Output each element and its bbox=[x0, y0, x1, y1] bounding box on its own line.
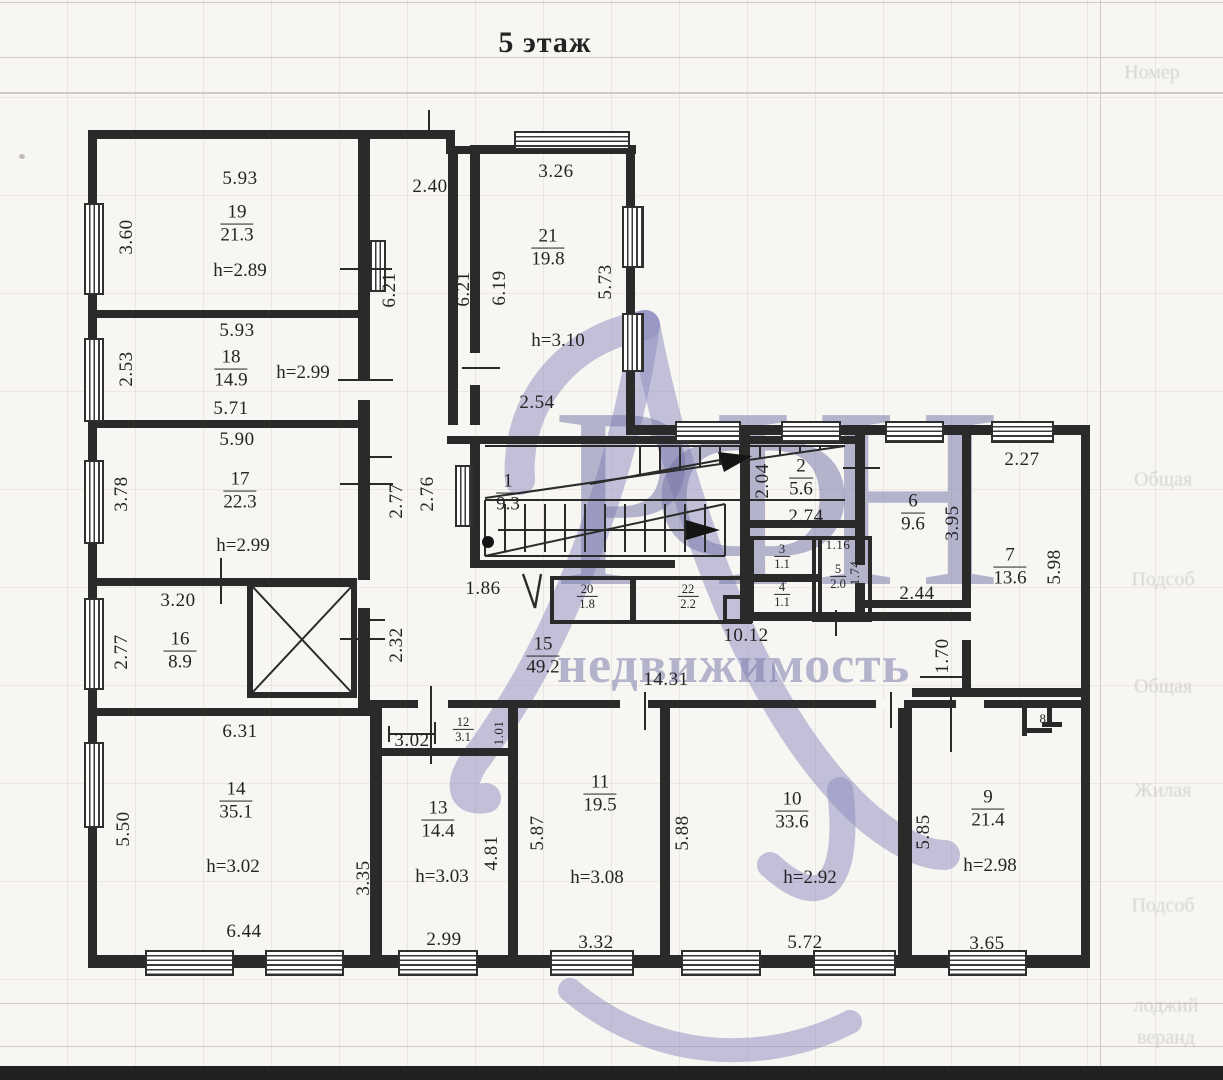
room-2-number: 2 bbox=[789, 457, 813, 479]
room-6-label: 69.6 bbox=[901, 492, 925, 535]
dimension-tick bbox=[890, 692, 892, 728]
dim: 3.32 bbox=[578, 932, 613, 954]
wall bbox=[470, 148, 480, 353]
wall bbox=[97, 708, 378, 716]
bg-table-label: Общая bbox=[1134, 469, 1192, 492]
dimension-tick bbox=[430, 686, 432, 764]
room-21-area: 19.8 bbox=[531, 249, 564, 270]
room-6-number: 6 bbox=[901, 492, 925, 514]
dim: 1.16 bbox=[826, 537, 851, 553]
window bbox=[398, 950, 478, 976]
window bbox=[622, 313, 644, 372]
dim: 1.70 bbox=[932, 638, 954, 673]
dim: 1.01 bbox=[491, 721, 507, 746]
wall bbox=[97, 310, 358, 318]
room-17-area: 22.3 bbox=[223, 492, 256, 513]
dim: 5.71 bbox=[213, 398, 248, 420]
bg-rule bbox=[0, 1003, 1223, 1004]
room-11-area: 19.5 bbox=[583, 795, 616, 816]
room-13-height: h=3.03 bbox=[415, 866, 468, 888]
wall bbox=[358, 139, 370, 379]
room-9-number: 9 bbox=[971, 788, 1004, 810]
room-22-label: 222.2 bbox=[678, 583, 699, 611]
dim: 2.32 bbox=[386, 627, 408, 662]
window bbox=[265, 950, 344, 976]
room-20-label: 201.8 bbox=[577, 583, 598, 611]
room-2-label: 25.6 bbox=[789, 457, 813, 500]
wall bbox=[358, 400, 370, 580]
dim: 3.20 bbox=[160, 590, 195, 612]
room-21-number: 21 bbox=[531, 227, 564, 249]
dimension-tick bbox=[358, 619, 385, 621]
room-17-label: 1722.3 bbox=[223, 470, 256, 513]
bg-table-label: Жилая bbox=[1135, 780, 1192, 803]
bg-rule bbox=[0, 57, 1223, 58]
dim: 4.81 bbox=[481, 835, 503, 870]
room-2-area: 5.6 bbox=[789, 479, 813, 500]
wall bbox=[470, 385, 480, 425]
room-1-label: 19.3 bbox=[496, 472, 520, 515]
dim: 5.88 bbox=[672, 815, 694, 850]
room-10-height: h=2.92 bbox=[783, 867, 836, 889]
room-13-area: 14.4 bbox=[421, 821, 454, 842]
room-19-height: h=2.89 bbox=[213, 260, 266, 282]
room-9-area: 21.4 bbox=[971, 810, 1004, 831]
bg-rule bbox=[1100, 0, 1101, 1080]
dim: 10.12 bbox=[723, 625, 768, 647]
window bbox=[622, 206, 644, 268]
dim: 2.99 bbox=[426, 929, 461, 951]
bg-table-label: Номер bbox=[1124, 62, 1180, 85]
room-14-label: 1435.1 bbox=[219, 780, 252, 823]
dim: 5.72 bbox=[787, 932, 822, 954]
dimension-tick bbox=[388, 726, 390, 742]
door-opening bbox=[418, 700, 448, 708]
room-9-height: h=2.98 bbox=[963, 855, 1016, 877]
room-12-number: 12 bbox=[453, 716, 474, 730]
room-4-area: 1.1 bbox=[774, 595, 790, 609]
dim: 2.04 bbox=[752, 463, 774, 498]
room-9-label: 921.4 bbox=[971, 788, 1004, 831]
room-22-number: 22 bbox=[678, 583, 699, 597]
room-18-area: 14.9 bbox=[214, 370, 247, 391]
window bbox=[84, 598, 104, 690]
room-6-area: 9.6 bbox=[901, 514, 925, 535]
dimension-tick bbox=[434, 722, 436, 744]
dimension-tick bbox=[835, 610, 837, 636]
bg-table-label: веранд bbox=[1137, 1027, 1195, 1050]
dim: 5.85 bbox=[913, 814, 935, 849]
bg-table-label: Подсоб bbox=[1131, 895, 1194, 918]
wall bbox=[660, 700, 670, 955]
dimension-tick bbox=[220, 558, 222, 604]
dim: 6.21 bbox=[379, 272, 401, 307]
wall bbox=[912, 688, 1090, 697]
room-1-number: 1 bbox=[496, 472, 520, 494]
room-16-label: 168.9 bbox=[164, 630, 197, 673]
dim: 5.90 bbox=[219, 429, 254, 451]
room-22-area: 2.2 bbox=[678, 597, 699, 611]
dim: 3.95 bbox=[942, 505, 964, 540]
dim: 5.98 bbox=[1044, 549, 1066, 584]
dim: 2.77 bbox=[111, 634, 133, 669]
room-3-number: 3 bbox=[774, 543, 790, 557]
window bbox=[84, 742, 104, 828]
room-10-area: 33.6 bbox=[775, 812, 808, 833]
room-15-label: 1549.2 bbox=[526, 635, 559, 678]
room-17-number: 17 bbox=[223, 470, 256, 492]
dim: 5.50 bbox=[113, 811, 135, 846]
room-18-label: 1814.9 bbox=[214, 348, 247, 391]
door-swing bbox=[520, 572, 544, 612]
wall bbox=[97, 420, 358, 428]
room-14-number: 14 bbox=[219, 780, 252, 802]
room-12-area: 3.1 bbox=[453, 730, 474, 744]
room-5-area: 2.0 bbox=[830, 577, 846, 591]
dim: 2.74 bbox=[788, 506, 823, 528]
dim: 3.78 bbox=[111, 476, 133, 511]
window bbox=[84, 338, 104, 422]
room-4-number: 4 bbox=[774, 581, 790, 595]
dimension-tick bbox=[920, 676, 965, 678]
room-13-label: 1314.4 bbox=[421, 799, 454, 842]
room-21-label: 2119.8 bbox=[531, 227, 564, 270]
bg-rule bbox=[0, 1046, 1223, 1047]
dim: 5.93 bbox=[219, 320, 254, 342]
dim: 3.02 bbox=[394, 730, 429, 752]
dim: 2.53 bbox=[116, 351, 138, 386]
dim: 2.27 bbox=[1004, 449, 1039, 471]
dim: 5.87 bbox=[527, 815, 549, 850]
dim: 6.31 bbox=[222, 721, 257, 743]
dim: 5.73 bbox=[595, 264, 617, 299]
dim: 6.44 bbox=[226, 921, 261, 943]
window bbox=[991, 421, 1054, 443]
room-5-label: 52.0 bbox=[830, 563, 846, 591]
window bbox=[145, 950, 234, 976]
bg-table-label: лоджий bbox=[1134, 995, 1199, 1018]
bg-rule bbox=[0, 2, 1223, 3]
room-10-number: 10 bbox=[775, 790, 808, 812]
room-15-area: 49.2 bbox=[526, 657, 559, 678]
dim: 3.65 bbox=[969, 933, 1004, 955]
room-3-area: 1.1 bbox=[774, 557, 790, 571]
dim: 14.31 bbox=[643, 669, 688, 691]
room-14-area: 35.1 bbox=[219, 802, 252, 823]
room-21-height: h=3.10 bbox=[531, 330, 584, 352]
room-7-area: 13.6 bbox=[993, 568, 1026, 589]
room-12-label: 123.1 bbox=[453, 716, 474, 744]
bg-rule bbox=[0, 92, 1223, 94]
room-14-height: h=3.02 bbox=[206, 856, 259, 878]
dim: 2.44 bbox=[899, 583, 934, 605]
dim: 3.26 bbox=[538, 161, 573, 183]
dim: 3.60 bbox=[116, 219, 138, 254]
dimension-tick bbox=[340, 268, 392, 270]
room-16-area: 8.9 bbox=[164, 652, 197, 673]
room-11-number: 11 bbox=[583, 773, 616, 795]
partition-box bbox=[723, 595, 753, 623]
dimension-tick bbox=[950, 692, 952, 752]
window bbox=[681, 950, 761, 976]
room-13-number: 13 bbox=[421, 799, 454, 821]
wall bbox=[508, 700, 518, 955]
window bbox=[84, 203, 104, 295]
dim: 5.93 bbox=[222, 168, 257, 190]
scan-speck bbox=[19, 154, 25, 159]
room-17-height: h=2.99 bbox=[216, 535, 269, 557]
bg-table-label: Подсоб bbox=[1131, 569, 1194, 592]
dimension-tick bbox=[644, 692, 646, 730]
wall bbox=[358, 608, 370, 708]
room-8-number: 8 bbox=[1040, 711, 1047, 727]
room-20-area: 1.8 bbox=[577, 597, 598, 611]
room-18-height: h=2.99 bbox=[276, 362, 329, 384]
window bbox=[813, 950, 896, 976]
wall bbox=[898, 700, 912, 955]
dim: 3.35 bbox=[353, 860, 375, 895]
dim: 1.86 bbox=[465, 578, 500, 600]
room-3-label: 31.1 bbox=[774, 543, 790, 571]
floor-plan-scan: Номер Общая Подсоб Общая Жилая Подсоб ло… bbox=[0, 0, 1223, 1080]
wall bbox=[626, 145, 635, 434]
room-1-area: 9.3 bbox=[496, 494, 520, 515]
dimension-tick bbox=[462, 367, 500, 369]
room-16-number: 16 bbox=[164, 630, 197, 652]
room-7-label: 713.6 bbox=[993, 546, 1026, 589]
room-5-number: 5 bbox=[830, 563, 846, 577]
room-7-number: 7 bbox=[993, 546, 1026, 568]
door-opening bbox=[956, 700, 984, 708]
room-4-label: 41.1 bbox=[774, 581, 790, 609]
window bbox=[514, 131, 630, 150]
room-19-label: 1921.3 bbox=[220, 203, 253, 246]
wall bbox=[370, 700, 382, 955]
elevator-shaft-x bbox=[247, 581, 357, 698]
window bbox=[885, 421, 944, 443]
room-15-number: 15 bbox=[526, 635, 559, 657]
dim: 2.40 bbox=[412, 176, 447, 198]
room-20-number: 20 bbox=[577, 583, 598, 597]
room-10-label: 1033.6 bbox=[775, 790, 808, 833]
dim: 2.54 bbox=[519, 392, 554, 414]
dim: 2.77 bbox=[386, 483, 408, 518]
dim: 6.21 bbox=[453, 271, 475, 306]
window bbox=[84, 460, 104, 544]
room-19-area: 21.3 bbox=[220, 225, 253, 246]
page-title: 5 этаж bbox=[498, 26, 591, 60]
room-19-number: 19 bbox=[220, 203, 253, 225]
dim: 1.74 bbox=[847, 561, 863, 586]
dim: 6.19 bbox=[489, 270, 511, 305]
dimension-tick bbox=[362, 456, 392, 458]
dimension-tick bbox=[338, 379, 393, 381]
wall bbox=[1022, 728, 1052, 733]
scan-edge-strip bbox=[0, 1066, 1223, 1080]
dim: 2.76 bbox=[417, 476, 439, 511]
wall bbox=[88, 130, 455, 139]
bg-table-label: Общая bbox=[1134, 676, 1192, 699]
room-18-number: 18 bbox=[214, 348, 247, 370]
dimension-tick bbox=[428, 110, 430, 132]
wall bbox=[1047, 708, 1052, 722]
room-11-height: h=3.08 bbox=[570, 867, 623, 889]
room-11-label: 1119.5 bbox=[583, 773, 616, 816]
